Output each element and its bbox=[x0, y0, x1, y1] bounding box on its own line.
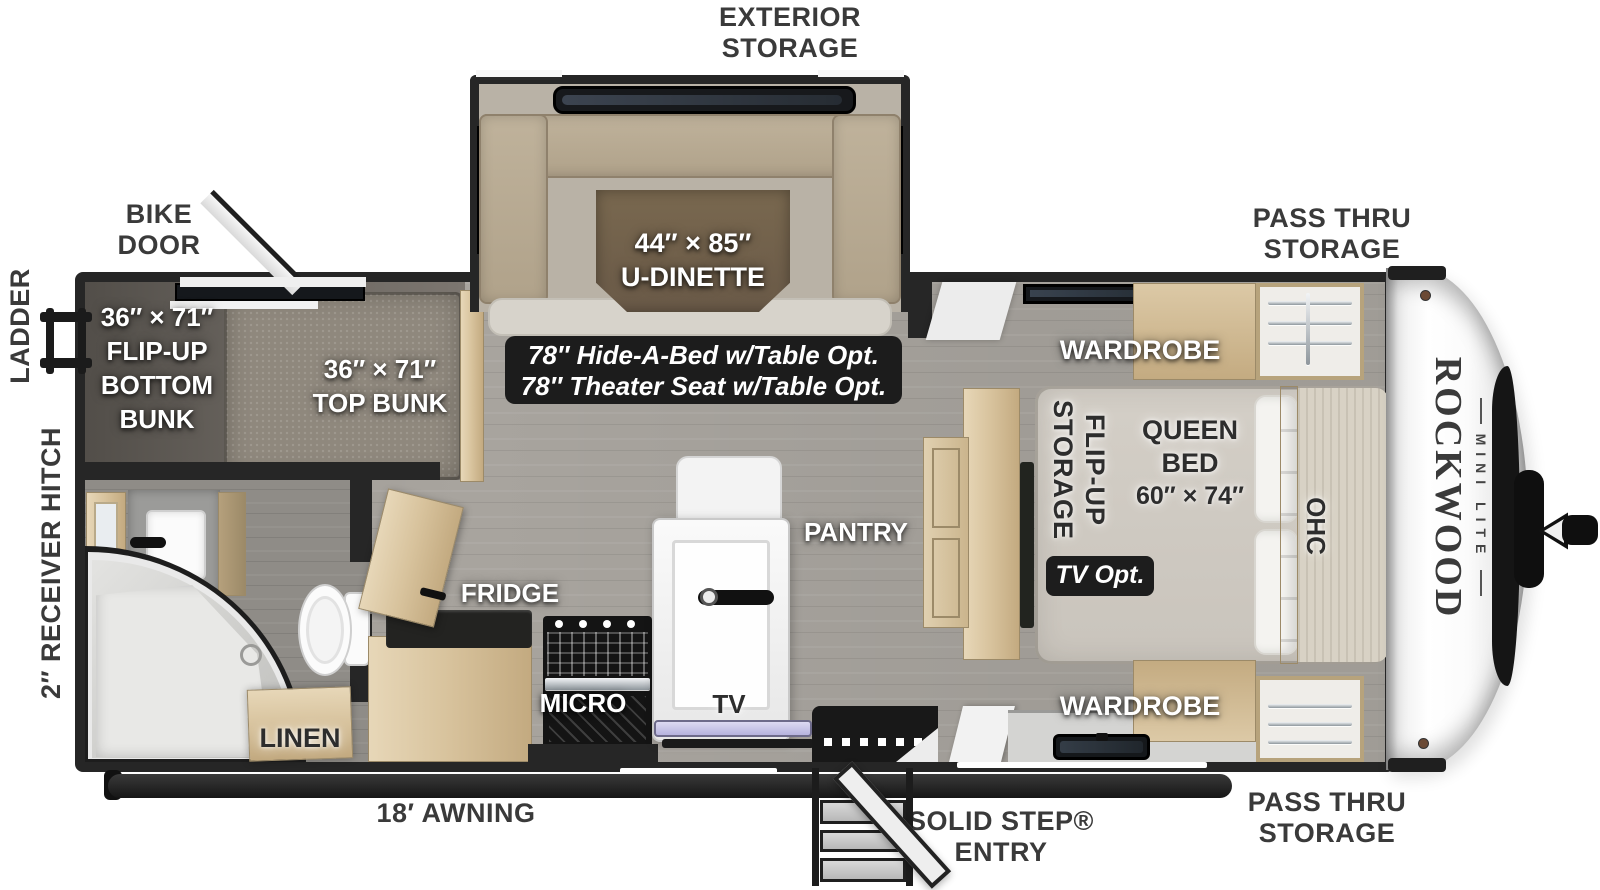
stove-knob bbox=[627, 620, 635, 628]
brand-rockwood: ROCKWOOD bbox=[1428, 323, 1470, 653]
kitchen-counter bbox=[528, 744, 658, 762]
brand-rule-left bbox=[1480, 398, 1482, 424]
cap-corner-bottom bbox=[1388, 758, 1446, 772]
awning-label: 18′ AWNING bbox=[346, 798, 566, 829]
ladder-icon-rail bbox=[46, 308, 54, 374]
slide-roof-trim-left bbox=[476, 70, 562, 77]
wardrobe-top-open bbox=[1256, 283, 1364, 380]
cap-corner-top bbox=[1388, 266, 1446, 280]
awning-bar bbox=[108, 774, 1232, 798]
entry-door-lock bbox=[700, 588, 718, 606]
tv-opt-text: TV Opt. bbox=[1046, 561, 1154, 590]
options-note: 78″ Hide-A-Bed w/Table Opt. 78″ Theater … bbox=[505, 336, 902, 404]
linen-label: LINEN bbox=[245, 722, 355, 755]
shower-drain bbox=[240, 644, 262, 666]
bike-door-opening bbox=[180, 277, 366, 287]
ohc-divider bbox=[1280, 386, 1298, 664]
hitch-jack bbox=[1514, 470, 1544, 588]
hanging-rod-post bbox=[1306, 293, 1310, 365]
wardrobe-top-label: WARDROBE bbox=[1040, 334, 1240, 367]
tv-screen-bar bbox=[654, 720, 812, 737]
cap-rivet-bottom bbox=[1418, 738, 1429, 749]
slide-skylight-window bbox=[553, 86, 856, 114]
cap-rivet-top bbox=[1420, 290, 1431, 301]
door-window-shade bbox=[676, 456, 782, 522]
hanging-rod bbox=[1268, 740, 1352, 744]
bath-wall-top bbox=[85, 462, 440, 480]
dinette-bench-left bbox=[479, 114, 548, 304]
vanity-faucet bbox=[130, 537, 166, 548]
dinette-label: 44″ × 85″ U-DINETTE bbox=[598, 226, 788, 294]
exterior-storage-label: EXTERIOR STORAGE bbox=[665, 2, 915, 65]
hanging-rod bbox=[1268, 321, 1352, 325]
ladder-label: LADDER bbox=[5, 246, 35, 406]
stove-knob bbox=[579, 620, 587, 628]
pass-thru-storage-top-label: PASS THRU STORAGE bbox=[1237, 203, 1427, 266]
bedroom-window-bottom-glass bbox=[1060, 741, 1143, 753]
step-tread bbox=[820, 858, 906, 882]
bath-cabinet bbox=[218, 492, 246, 596]
hanging-rod bbox=[1268, 341, 1352, 345]
floorplan-canvas: EXTERIOR STORAGE BIKE DOOR LADDER 2″ REC… bbox=[0, 0, 1600, 890]
entry-door-window bbox=[672, 540, 770, 710]
foot-dresser bbox=[923, 437, 969, 628]
stove-knob bbox=[603, 620, 611, 628]
range-stove bbox=[543, 616, 652, 750]
fridge-label: FRIDGE bbox=[440, 578, 580, 610]
brand-rule-right bbox=[1480, 570, 1482, 596]
bunk-rail bbox=[460, 290, 484, 482]
step-well-treads bbox=[824, 738, 924, 746]
dresser-door bbox=[932, 448, 960, 528]
hanging-rod bbox=[1268, 301, 1352, 305]
stove-knob bbox=[555, 620, 563, 628]
wardrobe-bottom-open bbox=[1256, 676, 1364, 762]
ladder-icon-rail bbox=[78, 308, 86, 374]
bath-wall-right-upper bbox=[350, 468, 372, 562]
receiver-hitch-label: 2″ RECEIVER HITCH bbox=[36, 413, 66, 713]
options-note-text: 78″ Hide-A-Bed w/Table Opt. 78″ Theater … bbox=[505, 340, 902, 402]
window-latch bbox=[1096, 733, 1108, 741]
bedroom-window-bottom bbox=[1053, 734, 1150, 760]
dresser-door bbox=[932, 538, 960, 618]
queen-bed-label: QUEEN BED 60″ × 74″ bbox=[1115, 414, 1265, 513]
top-bunk-label: 36″ × 71″ TOP BUNK bbox=[300, 352, 460, 420]
bottom-bunk-label: 36″ × 71″ FLIP-UP BOTTOM BUNK bbox=[87, 300, 227, 436]
dinette-bench-right bbox=[832, 114, 901, 304]
slide-roof-trim-right bbox=[818, 70, 904, 77]
tv-opt-badge: TV Opt. bbox=[1046, 556, 1154, 596]
tv-label: TV bbox=[699, 689, 759, 721]
stove-grate bbox=[547, 632, 648, 676]
micro-label: MICRO bbox=[518, 688, 648, 720]
pantry-label: PANTRY bbox=[781, 517, 931, 549]
hanging-rod bbox=[1268, 722, 1352, 726]
hitch-knob bbox=[1562, 515, 1598, 545]
dresser-back-panel bbox=[963, 388, 1020, 660]
hanging-rod bbox=[1268, 704, 1352, 708]
awning-highlight bbox=[957, 762, 1207, 768]
bed-tv-strip bbox=[1020, 462, 1034, 628]
toilet-lid bbox=[306, 596, 344, 664]
fridge-cabinet bbox=[368, 636, 532, 762]
slide-skylight-glass bbox=[562, 95, 842, 105]
flip-up-storage-label: FLIP-UP STORAGE bbox=[1047, 395, 1111, 545]
tv-bracket-bar bbox=[662, 739, 814, 748]
step-rail-left bbox=[812, 768, 819, 886]
wardrobe-bottom-label: WARDROBE bbox=[1040, 690, 1240, 723]
ohc-label: OHC bbox=[1301, 481, 1331, 571]
awning-highlight bbox=[620, 768, 777, 774]
brand-mini-lite: MINI LITE bbox=[1467, 392, 1495, 602]
pass-thru-storage-bottom-label: PASS THRU STORAGE bbox=[1232, 787, 1422, 850]
